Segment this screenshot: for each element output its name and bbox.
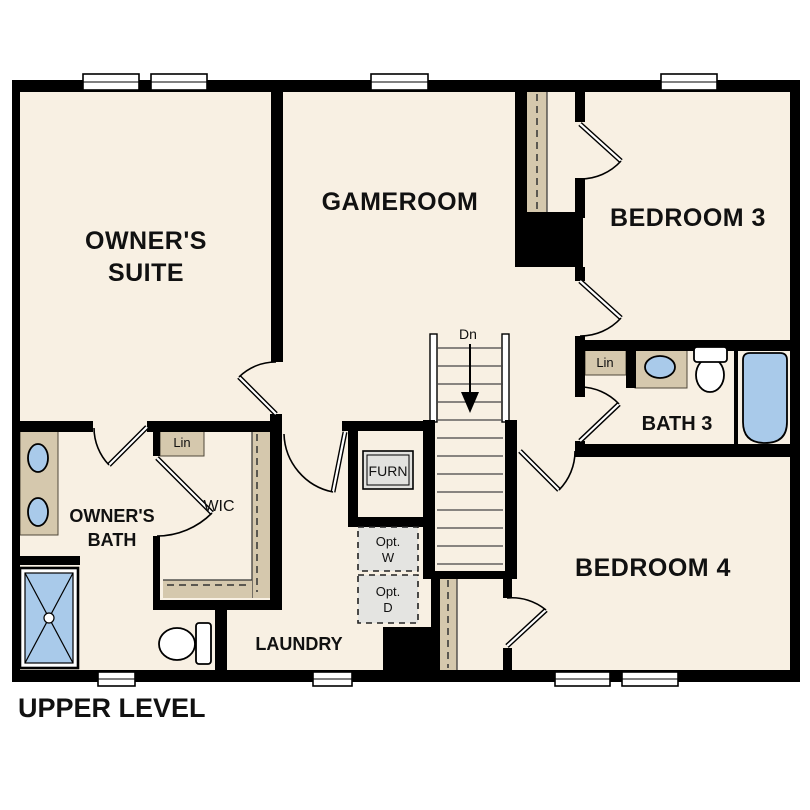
stair-rail-left [430, 334, 437, 422]
owners-bath-sink-2 [28, 498, 48, 526]
bath3-toilet [694, 347, 727, 392]
optional-dryer-box [358, 575, 418, 623]
room-label-bedroom4: BEDROOM 4 [575, 554, 731, 582]
room-label-bath3: BATH 3 [642, 413, 713, 435]
opt-washer-label-2: W [382, 550, 395, 565]
room-label-gameroom: GAMEROOM [322, 188, 479, 216]
room-label-owners-bath-2: BATH [88, 530, 137, 550]
bath3-tub [743, 353, 787, 443]
plan-title: UPPER LEVEL [18, 693, 206, 723]
shower-drain [44, 613, 54, 623]
bedroom3-closet-shelf [527, 92, 547, 212]
chase-block-upper [515, 212, 583, 267]
opt-washer-label-1: Opt. [376, 534, 401, 549]
bath3-sink [645, 356, 675, 378]
room-label-owners-bath-1: OWNER'S [69, 506, 154, 526]
room-label-owners-suite-1: OWNER'S [85, 227, 207, 255]
room-label-bedroom3: BEDROOM 3 [610, 204, 766, 232]
bedroom4-closet-shelf [440, 578, 457, 670]
wic-linen-label: Lin [173, 435, 190, 450]
chase-block-lower [383, 627, 433, 672]
stair-rail-right [502, 334, 509, 422]
opt-dryer-label-1: Opt. [376, 584, 401, 599]
bath3-linen-label: Lin [596, 355, 613, 370]
owners-bath-sink-1 [28, 444, 48, 472]
floor-plan-drawing: OWNER'S SUITE GAMEROOM BEDROOM 3 BATH 3 … [0, 0, 810, 810]
stairs-dn-label: Dn [459, 326, 477, 342]
furnace-label: FURN [369, 463, 408, 479]
room-label-owners-suite-2: SUITE [108, 259, 184, 287]
room-label-laundry: LAUNDRY [255, 634, 342, 654]
room-label-wic: WIC [203, 498, 234, 515]
opt-dryer-label-2: D [383, 600, 392, 615]
floor-plan: OWNER'S SUITE GAMEROOM BEDROOM 3 BATH 3 … [0, 0, 810, 810]
shower [20, 568, 78, 668]
